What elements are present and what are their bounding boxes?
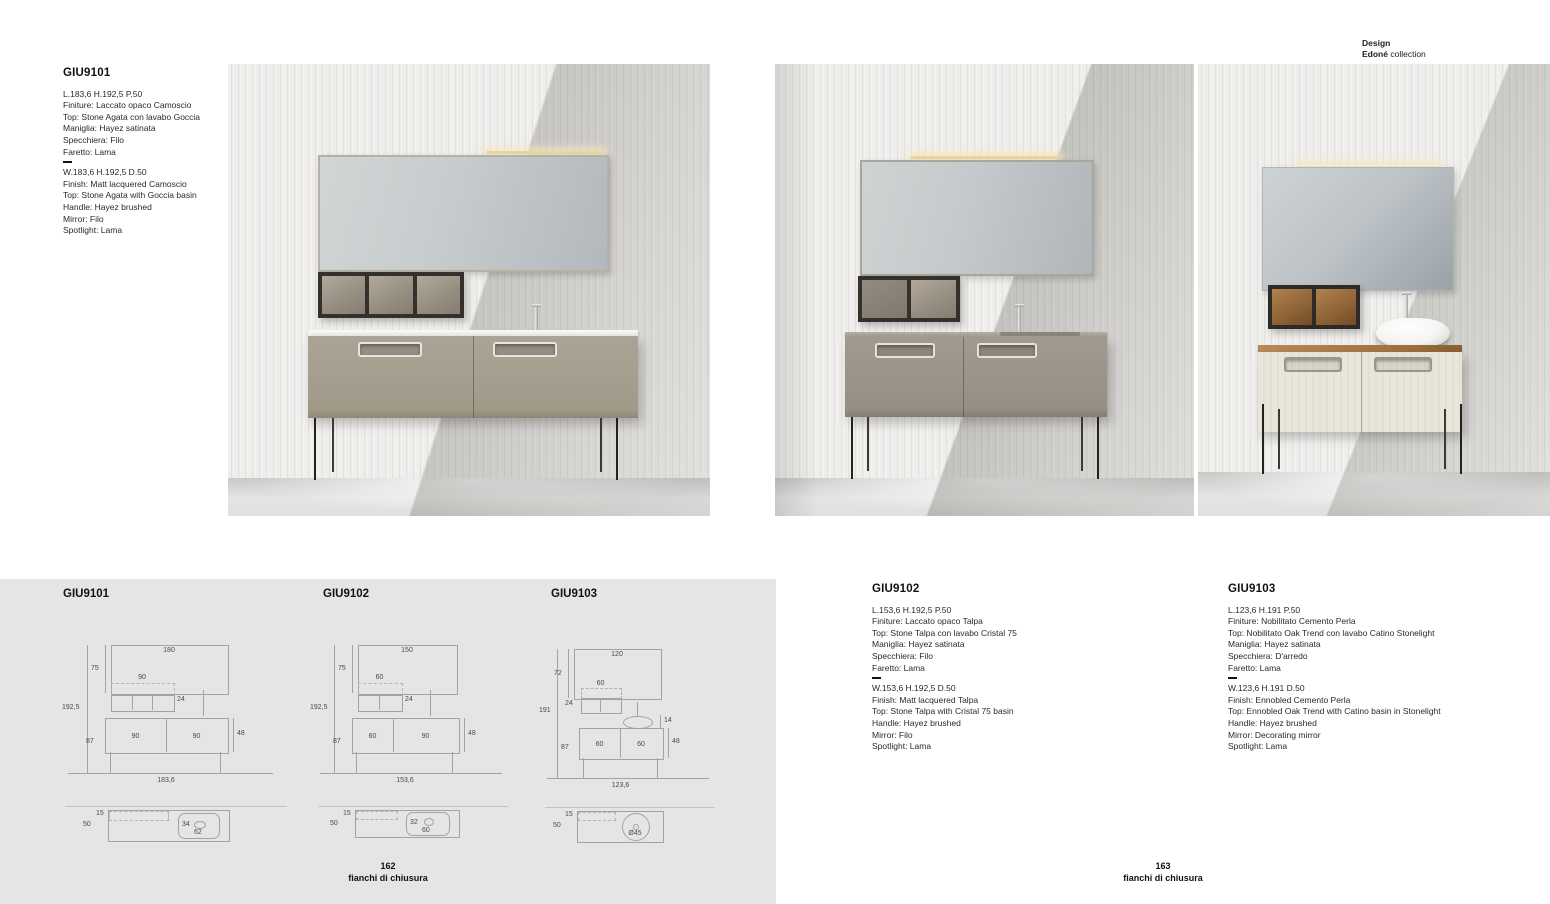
dim-total-height: 192,5 bbox=[310, 704, 328, 711]
floor-glow bbox=[228, 478, 710, 516]
drawing-giu9102: 192,5 150 75 60 24 60 90 48 87 153,6 bbox=[318, 630, 513, 860]
dim-plan-depth: 50 bbox=[330, 820, 338, 827]
spec-line: Maniglia: Hayez satinata bbox=[63, 123, 238, 135]
oak-shelf-unit bbox=[1268, 285, 1360, 329]
spec-line: Specchiera: D'arredo bbox=[1228, 651, 1478, 663]
spec-line: Finish: Matt lacquered Camoscio bbox=[63, 179, 238, 191]
dim-total-height: 191 bbox=[539, 707, 551, 714]
cabinet-leg bbox=[600, 418, 602, 472]
shelf-outline bbox=[358, 695, 403, 712]
vanity-cabinet-cemento-perla bbox=[1258, 352, 1462, 432]
product-code: GIU9101 bbox=[63, 68, 238, 80]
dim-base-height: 87 bbox=[333, 738, 341, 745]
spec-line: Handle: Hayez brushed bbox=[63, 202, 238, 214]
dim-mirror-height: 72 bbox=[554, 670, 562, 677]
faucet-spout bbox=[532, 304, 541, 307]
spec-line: Finiture: Laccato opaco Camoscio bbox=[63, 100, 238, 112]
dim-total-width: 183,6 bbox=[105, 777, 227, 784]
dim-line bbox=[660, 715, 661, 728]
shelf-cell bbox=[911, 280, 956, 318]
dim-basin-diameter: Ø45 bbox=[622, 830, 648, 837]
dim-shelf-width: 90 bbox=[111, 674, 173, 681]
page-number: 162 bbox=[300, 860, 476, 872]
faucet bbox=[1018, 304, 1021, 332]
integrated-basin bbox=[1000, 332, 1080, 336]
faucet-spout bbox=[1402, 292, 1411, 295]
door-handle-hayez bbox=[875, 343, 935, 358]
dim-cabinet-height: 48 bbox=[672, 738, 680, 745]
drawing-title: GIU9101 bbox=[63, 588, 109, 600]
spec-line: Top: Stone Talpa con lavabo Cristal 75 bbox=[872, 628, 1092, 640]
design-credit: Design Edoné collection bbox=[1362, 38, 1426, 60]
door-gap bbox=[963, 337, 964, 417]
dim-door-b: 90 bbox=[166, 733, 227, 740]
product-code: GIU9103 bbox=[1228, 584, 1478, 596]
dim-total-width: 123,6 bbox=[579, 782, 662, 789]
door-handle-hayez bbox=[358, 342, 422, 357]
leg-line bbox=[583, 758, 584, 778]
plan-guide bbox=[578, 812, 616, 821]
separator-dash bbox=[1228, 677, 1237, 679]
vanity-cabinet-talpa bbox=[845, 337, 1107, 417]
cabinet-leg bbox=[1097, 417, 1099, 479]
separator-dash bbox=[63, 161, 72, 163]
cast-shadow bbox=[228, 64, 710, 516]
page-section-label: fianchi di chiusura bbox=[1075, 872, 1251, 884]
door-gap bbox=[473, 336, 474, 418]
plan-wall-line bbox=[545, 807, 715, 808]
spec-line: L.153,6 H.192,5 P.50 bbox=[872, 605, 1092, 617]
product-code: GIU9102 bbox=[872, 584, 1092, 596]
dim-line bbox=[105, 645, 106, 693]
catalog-page: GIU9101 L.183,6 H.192,5 P.50 Finiture: L… bbox=[0, 0, 1550, 904]
dim-shelf-depth: 24 bbox=[565, 700, 573, 707]
spec-line: Mirror: Decorating mirror bbox=[1228, 730, 1478, 742]
dim-basin-depth: 34 bbox=[182, 821, 190, 828]
faucet-mark bbox=[637, 702, 638, 716]
floor-line bbox=[320, 773, 502, 774]
separator-dash bbox=[872, 677, 881, 679]
spec-line: Maniglia: Hayez satinata bbox=[1228, 639, 1478, 651]
dim-line bbox=[334, 645, 335, 773]
vessel-basin-catino bbox=[1376, 318, 1450, 348]
shelf-divider bbox=[132, 695, 133, 710]
cabinet-leg bbox=[616, 418, 618, 480]
mirror-filo bbox=[318, 155, 609, 272]
cabinet-leg bbox=[1278, 409, 1280, 469]
dim-cabinet-height: 48 bbox=[237, 730, 245, 737]
dim-shelf-width: 60 bbox=[581, 680, 620, 687]
page-footer-right: 163 fianchi di chiusura bbox=[1075, 860, 1251, 884]
plan-wall-line bbox=[65, 806, 287, 807]
floor-line bbox=[547, 778, 709, 779]
spec-line: Finiture: Laccato opaco Talpa bbox=[872, 616, 1092, 628]
product-photo-giu9101 bbox=[228, 64, 710, 516]
dim-door-a: 60 bbox=[579, 741, 620, 748]
dim-basin-height: 14 bbox=[664, 717, 672, 724]
plan-wall-line bbox=[318, 806, 508, 807]
spec-line: Faretto: Lama bbox=[1228, 663, 1478, 675]
spotlight-lama bbox=[1298, 164, 1440, 166]
spec-line: L.183,6 H.192,5 P.50 bbox=[63, 89, 238, 101]
cabinet-leg bbox=[1444, 409, 1446, 469]
dim-line bbox=[87, 645, 88, 773]
door-handle-hayez bbox=[1374, 357, 1432, 372]
spec-line: Top: Ennobled Oak Trend with Catino basi… bbox=[1228, 706, 1478, 718]
page-number: 163 bbox=[1075, 860, 1251, 872]
drawing-title: GIU9103 bbox=[551, 588, 597, 600]
spec-block-giu9103: GIU9103 L.123,6 H.191 P.50 Finiture: Nob… bbox=[1228, 584, 1478, 753]
shelf-outline bbox=[111, 695, 175, 712]
technical-drawings-panel: GIU9101 GIU9102 GIU9103 192,5 180 75 90 … bbox=[0, 579, 776, 904]
dim-mirror-height: 75 bbox=[338, 665, 346, 672]
spec-line: Spotlight: Lama bbox=[872, 741, 1092, 753]
dim-door-a: 60 bbox=[352, 733, 393, 740]
spec-block-giu9102: GIU9102 L.153,6 H.192,5 P.50 Finiture: L… bbox=[872, 584, 1092, 753]
door-gap bbox=[1361, 352, 1362, 432]
spec-line: Specchiera: Filo bbox=[872, 651, 1092, 663]
cabinet-leg bbox=[332, 418, 334, 472]
dim-line bbox=[568, 649, 569, 698]
spec-line: Finish: Ennobled Cemento Perla bbox=[1228, 695, 1478, 707]
dim-line bbox=[464, 718, 465, 752]
mirror-filo bbox=[860, 160, 1094, 276]
dim-basin-depth: 32 bbox=[410, 819, 418, 826]
spec-line: Finiture: Nobilitato Cemento Perla bbox=[1228, 616, 1478, 628]
cabinet-leg bbox=[1460, 404, 1462, 474]
faucet-spout bbox=[1015, 304, 1024, 307]
dim-base-height: 87 bbox=[561, 744, 569, 751]
cabinet-leg bbox=[867, 417, 869, 471]
brand-name: Edoné bbox=[1362, 49, 1388, 59]
plan-guide bbox=[109, 811, 169, 821]
open-shelf-unit bbox=[858, 276, 960, 322]
dim-plan-offset: 15 bbox=[343, 810, 351, 817]
door-handle-hayez bbox=[977, 343, 1037, 358]
floor-glow bbox=[775, 478, 1194, 516]
product-photo-giu9102 bbox=[775, 64, 1194, 516]
shelf-cell bbox=[1272, 289, 1312, 325]
leg-line bbox=[220, 752, 221, 773]
plan-drain bbox=[424, 818, 434, 826]
shelf-outline bbox=[581, 698, 622, 714]
spec-line: W.153,6 H.192,5 D.50 bbox=[872, 683, 1092, 695]
leg-line bbox=[356, 752, 357, 773]
spec-line: Top: Stone Agata with Goccia basin bbox=[63, 190, 238, 202]
dim-total-height: 192,5 bbox=[62, 704, 80, 711]
spec-line: Mirror: Filo bbox=[63, 214, 238, 226]
spec-line: Top: Nobilitato Oak Trend con lavabo Cat… bbox=[1228, 628, 1478, 640]
spec-line: Handle: Hayez brushed bbox=[1228, 718, 1478, 730]
faucet-mark bbox=[430, 690, 431, 716]
spec-line: Faretto: Lama bbox=[63, 147, 238, 159]
product-photo-giu9103 bbox=[1198, 64, 1550, 516]
leg-line bbox=[110, 752, 111, 773]
cabinet-leg bbox=[1081, 417, 1083, 471]
dim-mirror-width: 120 bbox=[574, 651, 660, 658]
spotlight-lama bbox=[910, 156, 1060, 159]
spec-line: Faretto: Lama bbox=[872, 663, 1092, 675]
dim-mirror-height: 75 bbox=[91, 665, 99, 672]
shelf-divider bbox=[379, 695, 380, 710]
cast-shadow bbox=[775, 64, 1194, 516]
spec-line: L.123,6 H.191 P.50 bbox=[1228, 605, 1478, 617]
spec-line: Maniglia: Hayez satinata bbox=[872, 639, 1092, 651]
dim-line bbox=[233, 718, 234, 752]
floor-line bbox=[68, 773, 273, 774]
dim-basin-width: 60 bbox=[422, 827, 430, 834]
spec-line: Finish: Matt lacquered Talpa bbox=[872, 695, 1092, 707]
spec-line: Spotlight: Lama bbox=[63, 225, 238, 237]
shelf-cell bbox=[322, 276, 365, 314]
collection-label: collection bbox=[1388, 49, 1426, 59]
dim-plan-offset: 15 bbox=[96, 810, 104, 817]
plan-drain bbox=[194, 821, 206, 829]
spec-line: Spotlight: Lama bbox=[1228, 741, 1478, 753]
shelf-cell bbox=[417, 276, 460, 314]
dim-shelf-depth: 24 bbox=[177, 696, 185, 703]
shelf-cell bbox=[1316, 289, 1356, 325]
vanity-cabinet-camoscio bbox=[308, 336, 638, 418]
shelf-cell bbox=[369, 276, 412, 314]
dim-total-width: 153,6 bbox=[352, 777, 458, 784]
floor-glow bbox=[1198, 472, 1550, 516]
dim-line bbox=[557, 649, 558, 778]
decorative-mirror bbox=[1262, 167, 1454, 291]
dim-door-b: 60 bbox=[620, 741, 662, 748]
dim-line bbox=[352, 645, 353, 693]
spec-block-giu9101: GIU9101 L.183,6 H.192,5 P.50 Finiture: L… bbox=[63, 68, 238, 237]
shelf-divider bbox=[152, 695, 153, 710]
leg-line bbox=[452, 752, 453, 773]
credit-collection: Edoné collection bbox=[1362, 49, 1426, 60]
spec-line: Top: Stone Talpa with Cristal 75 basin bbox=[872, 706, 1092, 718]
dim-cabinet-height: 48 bbox=[468, 730, 476, 737]
dim-plan-depth: 50 bbox=[553, 822, 561, 829]
leg-line bbox=[657, 758, 658, 778]
dim-base-height: 87 bbox=[86, 738, 94, 745]
faucet-mark bbox=[203, 690, 204, 716]
cabinet-leg bbox=[851, 417, 853, 479]
dim-shelf-depth: 24 bbox=[405, 696, 413, 703]
cabinet-leg bbox=[314, 418, 316, 480]
open-shelf-unit bbox=[318, 272, 464, 318]
countertop-oak-trend bbox=[1258, 345, 1462, 352]
dim-mirror-width: 150 bbox=[358, 647, 456, 654]
faucet bbox=[535, 304, 538, 332]
plan-guide bbox=[356, 811, 398, 820]
dim-basin-width: 62 bbox=[194, 829, 202, 836]
spec-line: W.183,6 H.192,5 D.50 bbox=[63, 167, 238, 179]
dim-mirror-width: 180 bbox=[111, 647, 227, 654]
drawing-giu9103: 191 120 72 60 24 14 60 60 48 87 123,6 bbox=[545, 630, 720, 865]
drawing-title: GIU9102 bbox=[323, 588, 369, 600]
dim-shelf-width: 60 bbox=[358, 674, 401, 681]
spec-line: W.123,6 H.191 D.50 bbox=[1228, 683, 1478, 695]
dim-plan-offset: 15 bbox=[565, 811, 573, 818]
dim-door-b: 90 bbox=[393, 733, 458, 740]
page-footer-left: 162 fianchi di chiusura bbox=[300, 860, 476, 884]
shelf-divider bbox=[600, 698, 601, 712]
dim-plan-depth: 50 bbox=[83, 821, 91, 828]
cabinet-leg bbox=[1262, 404, 1264, 474]
door-handle-hayez bbox=[493, 342, 557, 357]
spec-line: Top: Stone Agata con lavabo Goccia bbox=[63, 112, 238, 124]
credit-design-label: Design bbox=[1362, 38, 1426, 49]
spec-line: Handle: Hayez brushed bbox=[872, 718, 1092, 730]
spec-line: Specchiera: Filo bbox=[63, 135, 238, 147]
dim-line bbox=[668, 728, 669, 758]
spotlight-lama bbox=[486, 151, 604, 154]
dim-door-a: 90 bbox=[105, 733, 166, 740]
shelf-cell bbox=[862, 280, 907, 318]
page-section-label: fianchi di chiusura bbox=[300, 872, 476, 884]
drawing-giu9101: 192,5 180 75 90 24 90 90 48 87 183,6 bbox=[60, 630, 295, 860]
spec-line: Mirror: Filo bbox=[872, 730, 1092, 742]
door-handle-hayez bbox=[1284, 357, 1342, 372]
